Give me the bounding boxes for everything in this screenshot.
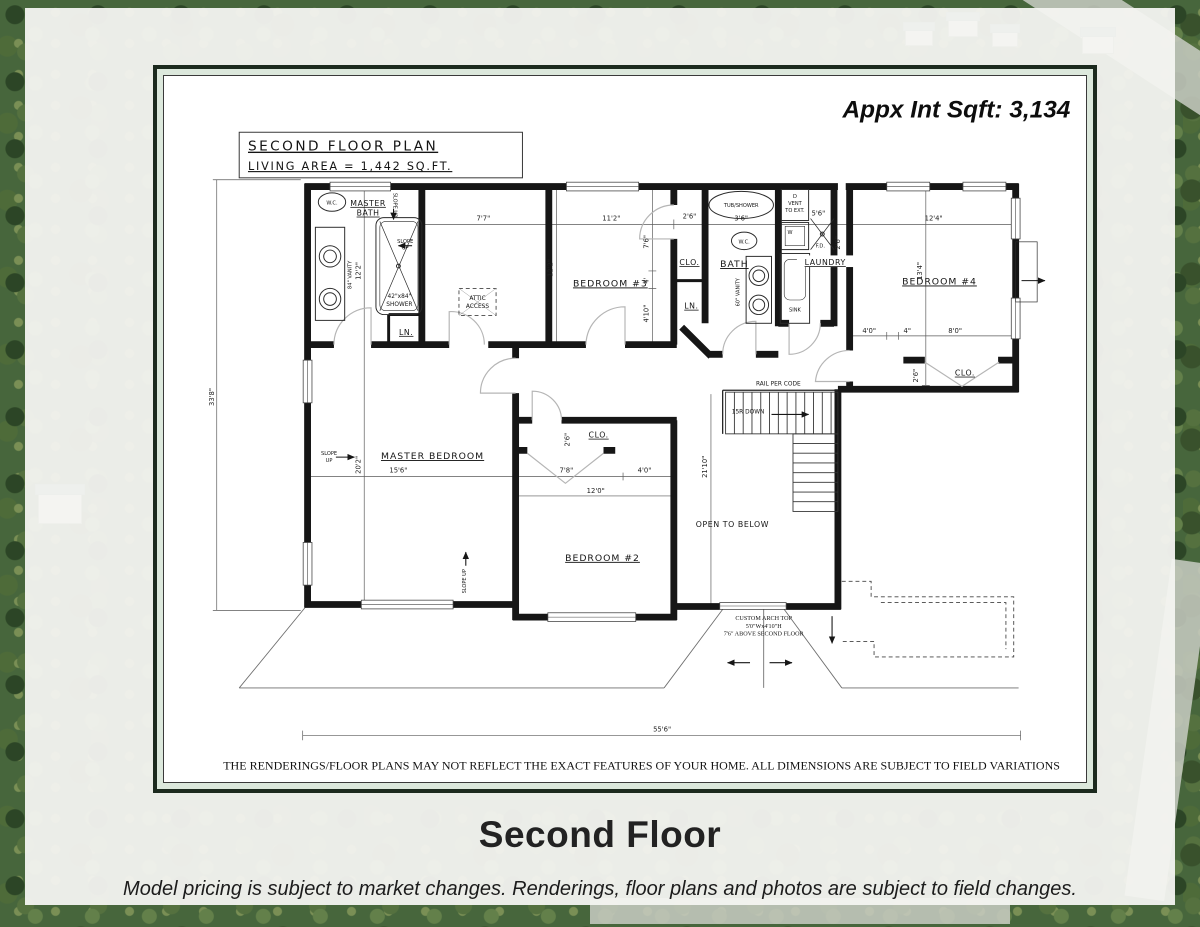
dim-4: 4' [642,277,650,283]
plan-frame: SECOND FLOOR PLAN LIVING AREA = 1,442 SQ… [153,65,1097,793]
dim-4-0: 4'0" [638,467,652,475]
arch-note: 7'6" ABOVE SECOND FLOOR [724,632,805,638]
linen-label-bath: LN. [684,302,698,311]
wc-label: W.C. [739,239,751,245]
washer-label: W [788,230,793,236]
page-caption: Model pricing is subject to market chang… [25,878,1175,901]
floor-drain-label: F.D. [816,244,826,250]
room-label-laundry: LAUNDRY [805,258,846,267]
dim-4in: 4" [904,327,911,335]
dim-4-10: 4'10" [642,305,650,323]
closet-label-bedroom4: CLO. [955,369,975,378]
sqft-total: Appx Int Sqft: 3,134 [841,97,1070,124]
stair-run-label: 15R DOWN [732,409,765,415]
dryer-vent-note: TO EXT. [784,208,805,214]
shower-size-label: SHOWER [386,302,412,308]
dim-15-6: 15'6" [389,467,407,475]
dryer-vent-note: VENT [788,201,802,207]
title-block: SECOND FLOOR PLAN LIVING AREA = 1,442 SQ… [239,132,522,178]
arch-note: CUSTOM ARCH TOP [735,616,792,622]
floor-plan-drawing: SECOND FLOOR PLAN LIVING AREA = 1,442 SQ… [164,76,1086,782]
dim-12-4: 12'4" [925,215,943,223]
room-label-master-bath: BATH [357,209,380,218]
sink-label: SINK [789,308,802,314]
dim-20-2: 20'2" [354,456,362,474]
room-label-bath: BATH [720,259,749,270]
windows [303,182,1020,621]
page-title: Second Floor [25,814,1175,856]
dim-2-6: 2'6" [683,213,697,221]
dryer-vent-note: D [793,194,797,200]
dim-12-2: 12'2" [354,262,362,280]
vanity-60-label: 60" VANITY [735,277,741,306]
dashed-roof-below [842,581,1014,657]
plan-sheet: SECOND FLOOR PLAN LIVING AREA = 1,442 SQ… [163,75,1087,783]
dim-7-8: 7'8" [560,467,574,475]
shower-size-label: 42"x84" [388,294,412,300]
room-label-bedroom2: BEDROOM #2 [565,553,640,564]
slope-up-note: SLOPE UP [392,193,398,217]
slope-up-note: SLOPE [397,239,413,245]
closet-label-bedroom2: CLO. [589,431,609,440]
room-label-bedroom4: BEDROOM #4 [902,277,977,288]
content-panel: SECOND FLOOR PLAN LIVING AREA = 1,442 SQ… [25,8,1175,905]
dim-7-6: 7'6" [642,235,650,249]
vanity-84-label: 84" VANITY [348,260,354,289]
dim-7-7: 7'7" [477,215,491,223]
room-label-bedroom3: BEDROOM #3 [573,278,648,289]
plan-living-area: LIVING AREA = 1,442 SQ.FT. [248,160,452,173]
disclaimer-text: THE RENDERINGS/FLOOR PLANS MAY NOT REFLE… [223,758,1060,772]
plan-title: SECOND FLOOR PLAN [248,139,438,155]
walls [305,184,1019,620]
dim-2-6: 2'6" [912,369,920,383]
dim-3-6: 3'6" [734,215,748,223]
dim-11-2: 11'2" [602,215,620,223]
label-open-to-below: OPEN TO BELOW [696,520,769,529]
dim-21-10: 21'10" [701,456,709,478]
closet-label-bedroom3: CLO. [679,258,699,267]
slope-up-note: SLOPE [321,451,337,457]
slope-up-note: UP [402,246,409,252]
room-label-master-bedroom: MASTER BEDROOM [381,451,484,462]
attic-access-label: ACCESS [466,304,489,310]
slope-up-note: SLOPE UP [462,569,468,593]
attic-access-label: ATTIC [469,296,485,302]
dim-55-6: 55'6" [653,726,671,734]
wc-label: W.C. [326,201,338,207]
dim-33-8: 33'8" [208,388,216,406]
dim-8-0: 8'0" [948,327,962,335]
dim-4-0: 4'0" [862,327,876,335]
slope-up-note: UP [326,458,333,464]
dim-2-6: 2'6" [834,236,842,250]
arch-note: 5'0"Wx4'10"H [746,624,782,630]
dimension-lines [213,180,1021,741]
tub-shower-label: TUB/SHOWER [723,203,759,209]
dim-12-0: 12'0" [587,487,605,495]
linen-label-hall: LN. [399,328,413,337]
rail-note: RAIL PER CODE [756,381,801,387]
dim-13-4: 13'4" [916,262,924,280]
dim-5-6: 5'6" [812,210,826,218]
staircase [723,390,838,511]
dim-2-6: 2'6" [563,433,571,447]
room-label-master-bath: MASTER [350,199,386,208]
dim-12-2: 12'2" [547,259,555,277]
